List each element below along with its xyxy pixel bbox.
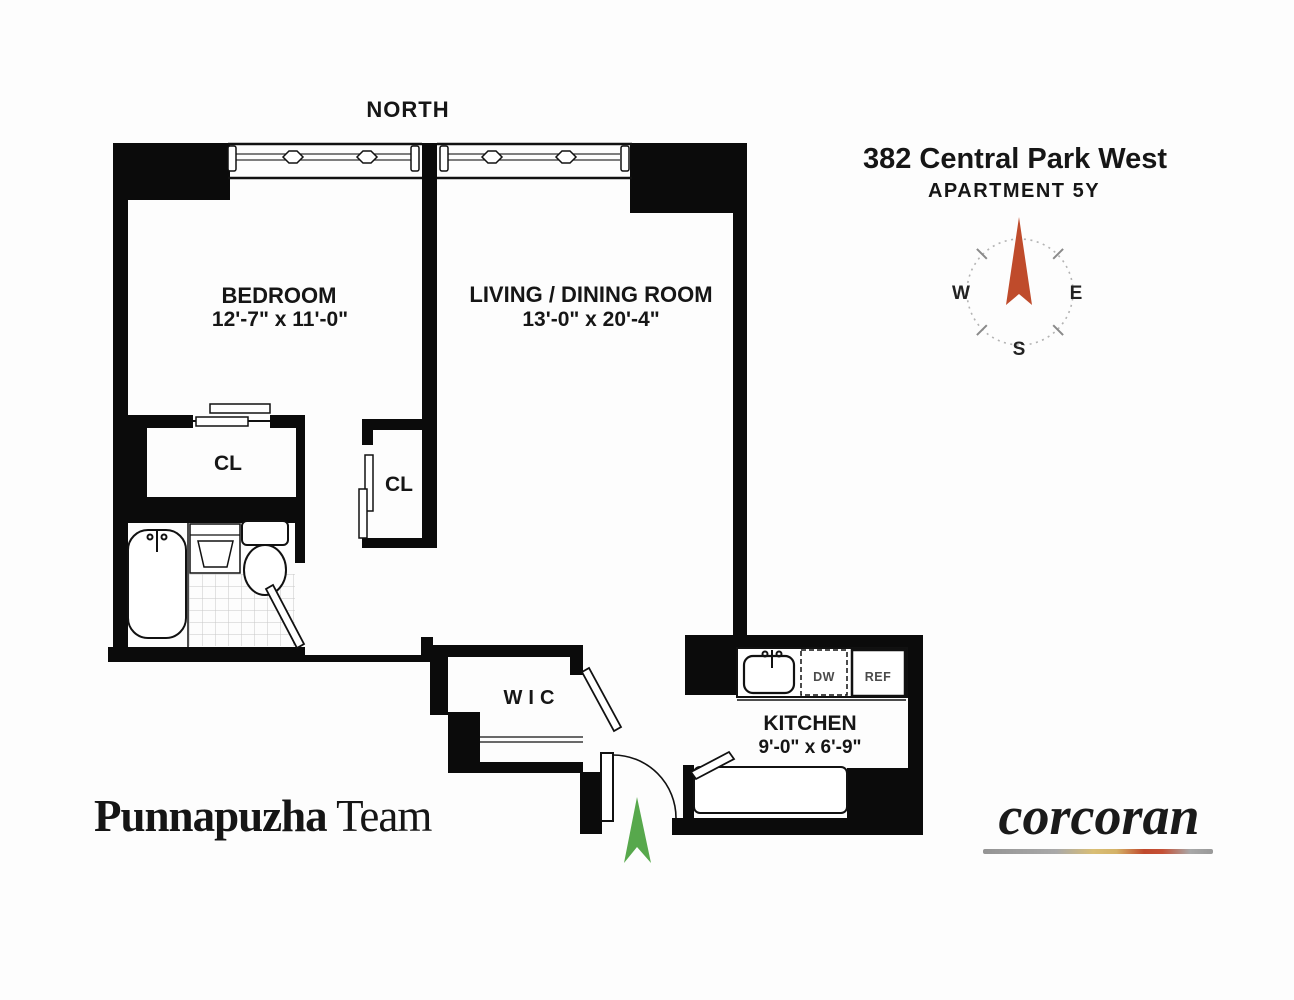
wall-east-living xyxy=(733,213,747,643)
wall-kitchen-southeast-block xyxy=(847,768,923,835)
wall-entry-west xyxy=(580,772,602,834)
wall-kitchen-east xyxy=(908,640,923,770)
closet-bedroom-label: CL xyxy=(214,452,242,475)
column-northeast xyxy=(630,143,747,213)
floor-plan-page: W E S NORTH BEDROOM 12'-7" x 11'-0" LIVI… xyxy=(0,0,1294,1000)
entry-door xyxy=(601,753,613,821)
wall-wic-southwest-block xyxy=(448,712,480,773)
wall-wic-south xyxy=(480,762,583,773)
wall-bathroom-east xyxy=(295,523,305,563)
wall-wic-door-jamb xyxy=(570,645,583,675)
closet2-bifold-panel xyxy=(359,489,367,538)
compass: W E S xyxy=(952,217,1082,360)
wall-wic-north xyxy=(430,645,583,657)
compass-east-label: E xyxy=(1070,283,1083,304)
kitchen-dims: 9'-0" x 6'-9" xyxy=(758,737,861,758)
address-title: 382 Central Park West xyxy=(863,143,1167,175)
bathroom-fixtures xyxy=(128,521,304,648)
entry-arrow-icon xyxy=(624,797,651,863)
compass-west-label: W xyxy=(952,283,970,304)
living-dining-dims: 13'-0" x 20'-4" xyxy=(522,308,659,331)
living-dining-label: LIVING / DINING ROOM xyxy=(469,282,712,307)
kitchen-sink xyxy=(744,656,794,693)
wall-west xyxy=(113,143,128,662)
north-label: NORTH xyxy=(366,97,449,122)
closet-hall-label: CL xyxy=(385,473,413,496)
team-name-bold: Punnapuzha xyxy=(94,791,327,841)
brokerage-logo: corcoran xyxy=(983,788,1215,854)
closet1-slider-panel xyxy=(196,417,248,426)
wall-closet2-south xyxy=(362,538,427,548)
kitchen-peninsula-counter xyxy=(694,767,847,813)
wall-closet1-bathroom xyxy=(113,497,305,523)
team-name-regular: Team xyxy=(336,791,431,841)
apartment-subtitle: APARTMENT 5Y xyxy=(928,180,1100,202)
toilet-bowl xyxy=(244,545,286,595)
wall-kitchen-north xyxy=(685,635,923,648)
wall-closet1-east xyxy=(296,415,305,497)
wall-bathroom-south xyxy=(108,647,305,662)
wic-door xyxy=(582,668,621,731)
bedroom-label: BEDROOM xyxy=(222,283,337,308)
entry-door-swing xyxy=(613,755,676,818)
compass-south-label: S xyxy=(1013,339,1026,360)
brokerage-gradient-bar xyxy=(983,849,1213,854)
wall-bedroom-living-partition xyxy=(422,143,437,548)
wall-corridor-south xyxy=(305,655,445,662)
team-name: Punnapuzha Team xyxy=(94,790,431,842)
compass-needle xyxy=(1006,217,1032,305)
entry-door-group xyxy=(601,753,676,863)
wall-closet1-west xyxy=(128,415,147,497)
dishwasher-label: DW xyxy=(813,670,835,684)
column-northwest xyxy=(113,143,230,200)
toilet-tank xyxy=(242,521,288,545)
brokerage-logo-text: corcoran xyxy=(983,788,1215,845)
wall-closet2-west-stub xyxy=(362,419,373,445)
walk-in-closet-label: WIC xyxy=(504,687,561,709)
wall-wic-west xyxy=(430,645,448,715)
sink-basin xyxy=(198,541,233,567)
bedroom-dims: 12'-7" x 11'-0" xyxy=(212,308,348,331)
refrigerator-label: REF xyxy=(865,670,892,684)
kitchen-label: KITCHEN xyxy=(763,712,856,735)
closet1-slider-panel xyxy=(210,404,270,413)
